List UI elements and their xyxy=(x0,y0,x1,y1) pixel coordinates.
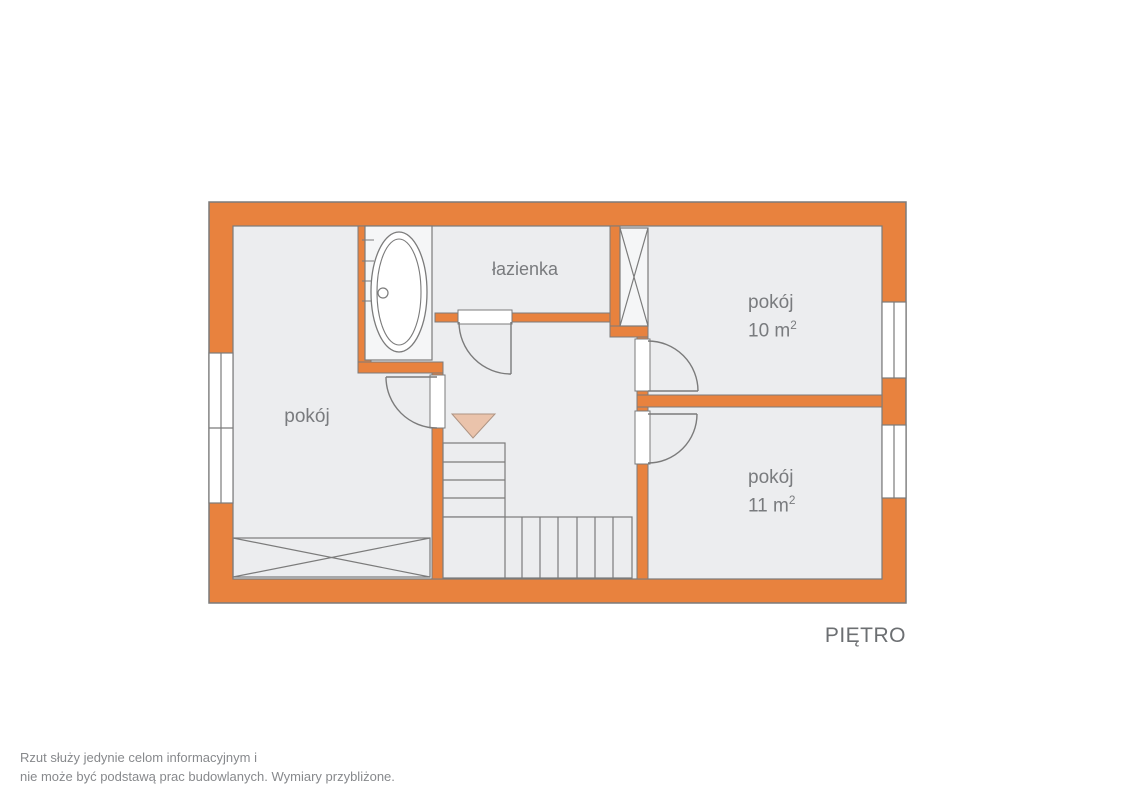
floor-plan-drawing xyxy=(0,0,1123,794)
bathtub-icon xyxy=(362,226,432,360)
floor-plan-page: łazienka pokój pokój 10 m2 pokój 11 m2 P… xyxy=(0,0,1123,794)
room11-name: pokój xyxy=(748,466,795,489)
wall-room-divider xyxy=(637,395,882,407)
window-right-room10 xyxy=(882,302,906,378)
opening-room10 xyxy=(635,339,650,391)
window-right-room11 xyxy=(882,425,906,498)
wall-bath-east xyxy=(610,226,620,337)
room11-area: 11 m2 xyxy=(748,489,795,517)
wall-under-tub xyxy=(358,362,443,373)
room10-name: pokój xyxy=(748,291,797,314)
room-label-room11: pokój 11 m2 xyxy=(748,466,795,517)
wall-under-shaft xyxy=(610,326,648,337)
room-label-room10: pokój 10 m2 xyxy=(748,291,797,342)
room-label-bathroom: łazienka xyxy=(455,259,595,280)
floor-title: PIĘTRO xyxy=(706,624,906,648)
disclaimer-line2: nie może być podstawą prac budowlanych. … xyxy=(20,767,395,786)
disclaimer-line1: Rzut służy jedynie celom informacyjnym i xyxy=(20,748,395,767)
room10-area: 10 m2 xyxy=(748,314,797,342)
opening-bathroom xyxy=(458,310,512,324)
opening-room11 xyxy=(635,411,650,464)
disclaimer-note: Rzut służy jedynie celom informacyjnym i… xyxy=(20,748,395,786)
shaft-icon xyxy=(620,228,648,326)
room-label-left: pokój xyxy=(257,406,357,428)
window-left-double xyxy=(209,353,233,503)
opening-room-left xyxy=(430,375,445,428)
